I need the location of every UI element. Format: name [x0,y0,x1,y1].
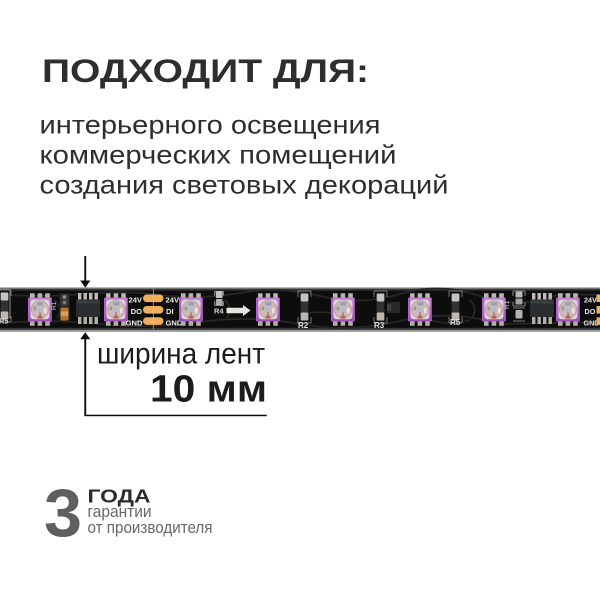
svg-text:DI: DI [166,307,174,316]
svg-text:DO: DO [131,307,142,316]
svg-text:10 мм: 10 мм [150,369,267,411]
svg-text:24V: 24V [128,296,142,305]
svg-text:R2: R2 [298,321,309,330]
svg-text:R5: R5 [450,318,461,327]
svg-text:R1: R1 [51,301,58,310]
svg-text:коммерческих помещений: коммерческих помещений [40,139,397,169]
svg-text:GND: GND [126,319,143,328]
svg-text:R5: R5 [0,317,8,326]
svg-text:24V: 24V [166,296,180,305]
svg-text:DO: DO [585,307,596,316]
svg-text:24V: 24V [584,295,597,304]
svg-text:ПОДХОДИТ ДЛЯ:: ПОДХОДИТ ДЛЯ: [42,53,369,89]
svg-text:ширина лент: ширина лент [97,338,265,371]
svg-text:3: 3 [44,476,82,551]
svg-text:R1: R1 [504,300,511,309]
svg-text:R4: R4 [214,307,224,316]
svg-text:интерьерного освещения: интерьерного освещения [40,109,381,139]
svg-text:создания световых декораций: создания световых декораций [40,169,449,199]
svg-text:R3: R3 [374,321,385,330]
svg-text:от производителя: от производителя [88,519,213,537]
